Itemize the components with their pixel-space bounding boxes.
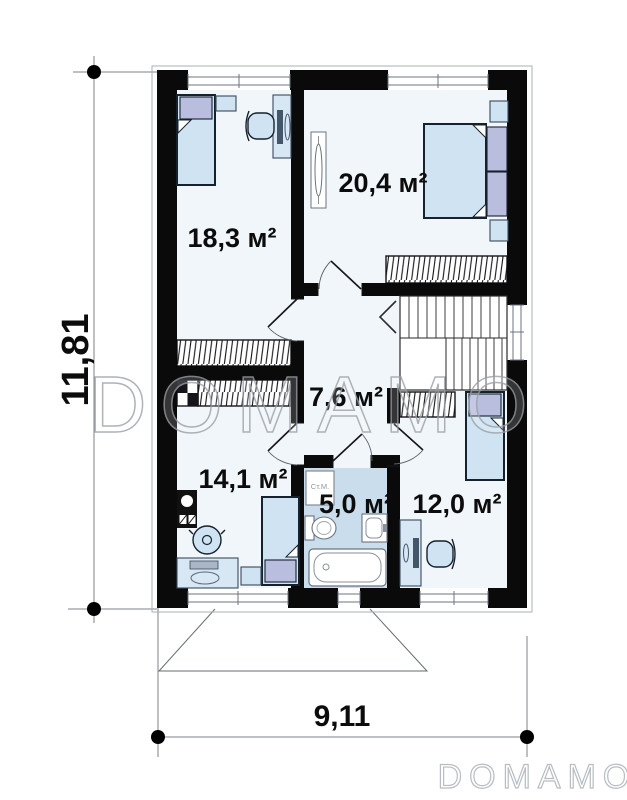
nightstand [216, 96, 236, 111]
wall-top-2 [290, 70, 388, 90]
wall-bath-top-l [304, 455, 333, 468]
window-bottom-right [420, 591, 488, 605]
wardrobe-20-4 [386, 256, 507, 283]
desk-12-0 [400, 520, 421, 586]
pillow [265, 560, 296, 582]
desk-18-3 [273, 95, 291, 158]
wall-bottom-2 [288, 588, 338, 608]
window-top-left [188, 74, 290, 88]
watermark-center: DOMAMO [89, 360, 542, 449]
wall-center-vertical-a [291, 90, 304, 299]
window-bottom-left [188, 591, 288, 605]
bathtub [309, 549, 386, 586]
wall-right-upper [507, 70, 527, 305]
room-label-5-0: 5,0 м² [319, 489, 393, 519]
porch-roof-outline [159, 609, 427, 671]
pillow [180, 97, 212, 119]
floor-plan-page: 11,81 9,11 [0, 0, 627, 800]
room-label-12-0: 12,0 м² [412, 489, 501, 519]
monitor [277, 110, 283, 144]
pillow [487, 172, 507, 216]
wall-bedroom2-bottom-l [304, 283, 318, 296]
dim-dot [151, 730, 165, 744]
nightstand [490, 220, 508, 241]
dim-dot [520, 730, 534, 744]
office-chair-12-0 [427, 539, 455, 569]
monitor [413, 538, 419, 568]
stove [177, 490, 197, 528]
wall-left [157, 70, 177, 608]
dim-dot [87, 65, 101, 79]
wall-bedroom2-bottom-r [362, 283, 507, 296]
nightstand [241, 567, 261, 585]
single-bed-18-3 [177, 95, 215, 185]
window-right-stairs [510, 305, 524, 360]
brand-logo: DOMAMO [438, 758, 627, 796]
office-chair-18-3 [246, 111, 274, 141]
single-bed-14-1 [262, 497, 299, 585]
dim-dot [87, 602, 101, 616]
window-top-right [388, 74, 488, 88]
double-bed-20-4 [424, 124, 507, 218]
wall-bottom-3 [360, 588, 420, 608]
wall-bath-right [387, 466, 400, 588]
radiator [311, 132, 326, 208]
dimension-width-label: 9,11 [314, 700, 371, 733]
wall-bottom-4 [488, 588, 527, 608]
window-bathroom [338, 591, 360, 605]
wall-bottom-1 [157, 588, 188, 608]
floor-plan: 11,81 9,11 [0, 0, 627, 800]
nightstand [490, 101, 508, 122]
toilet [305, 516, 336, 540]
room-label-20-4: 20,4 м² [338, 168, 427, 198]
room-label-14-1: 14,1 м² [198, 464, 287, 494]
pillow [487, 127, 507, 171]
kitchen-counter [177, 558, 238, 588]
room-label-18-3: 18,3 м² [187, 223, 276, 253]
